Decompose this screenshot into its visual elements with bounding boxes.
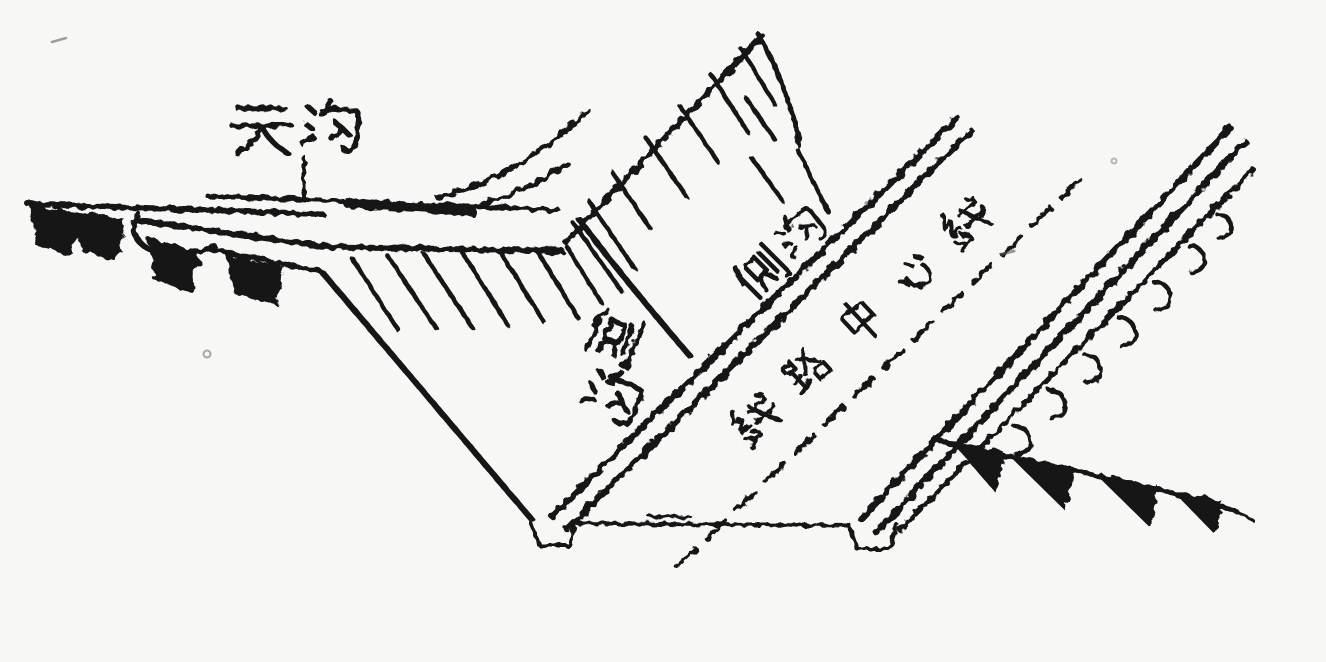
cutting-drainage-diagram xyxy=(0,0,1326,662)
scan-grain-overlay xyxy=(0,0,1326,662)
scanned-diagram-canvas xyxy=(0,0,1326,662)
